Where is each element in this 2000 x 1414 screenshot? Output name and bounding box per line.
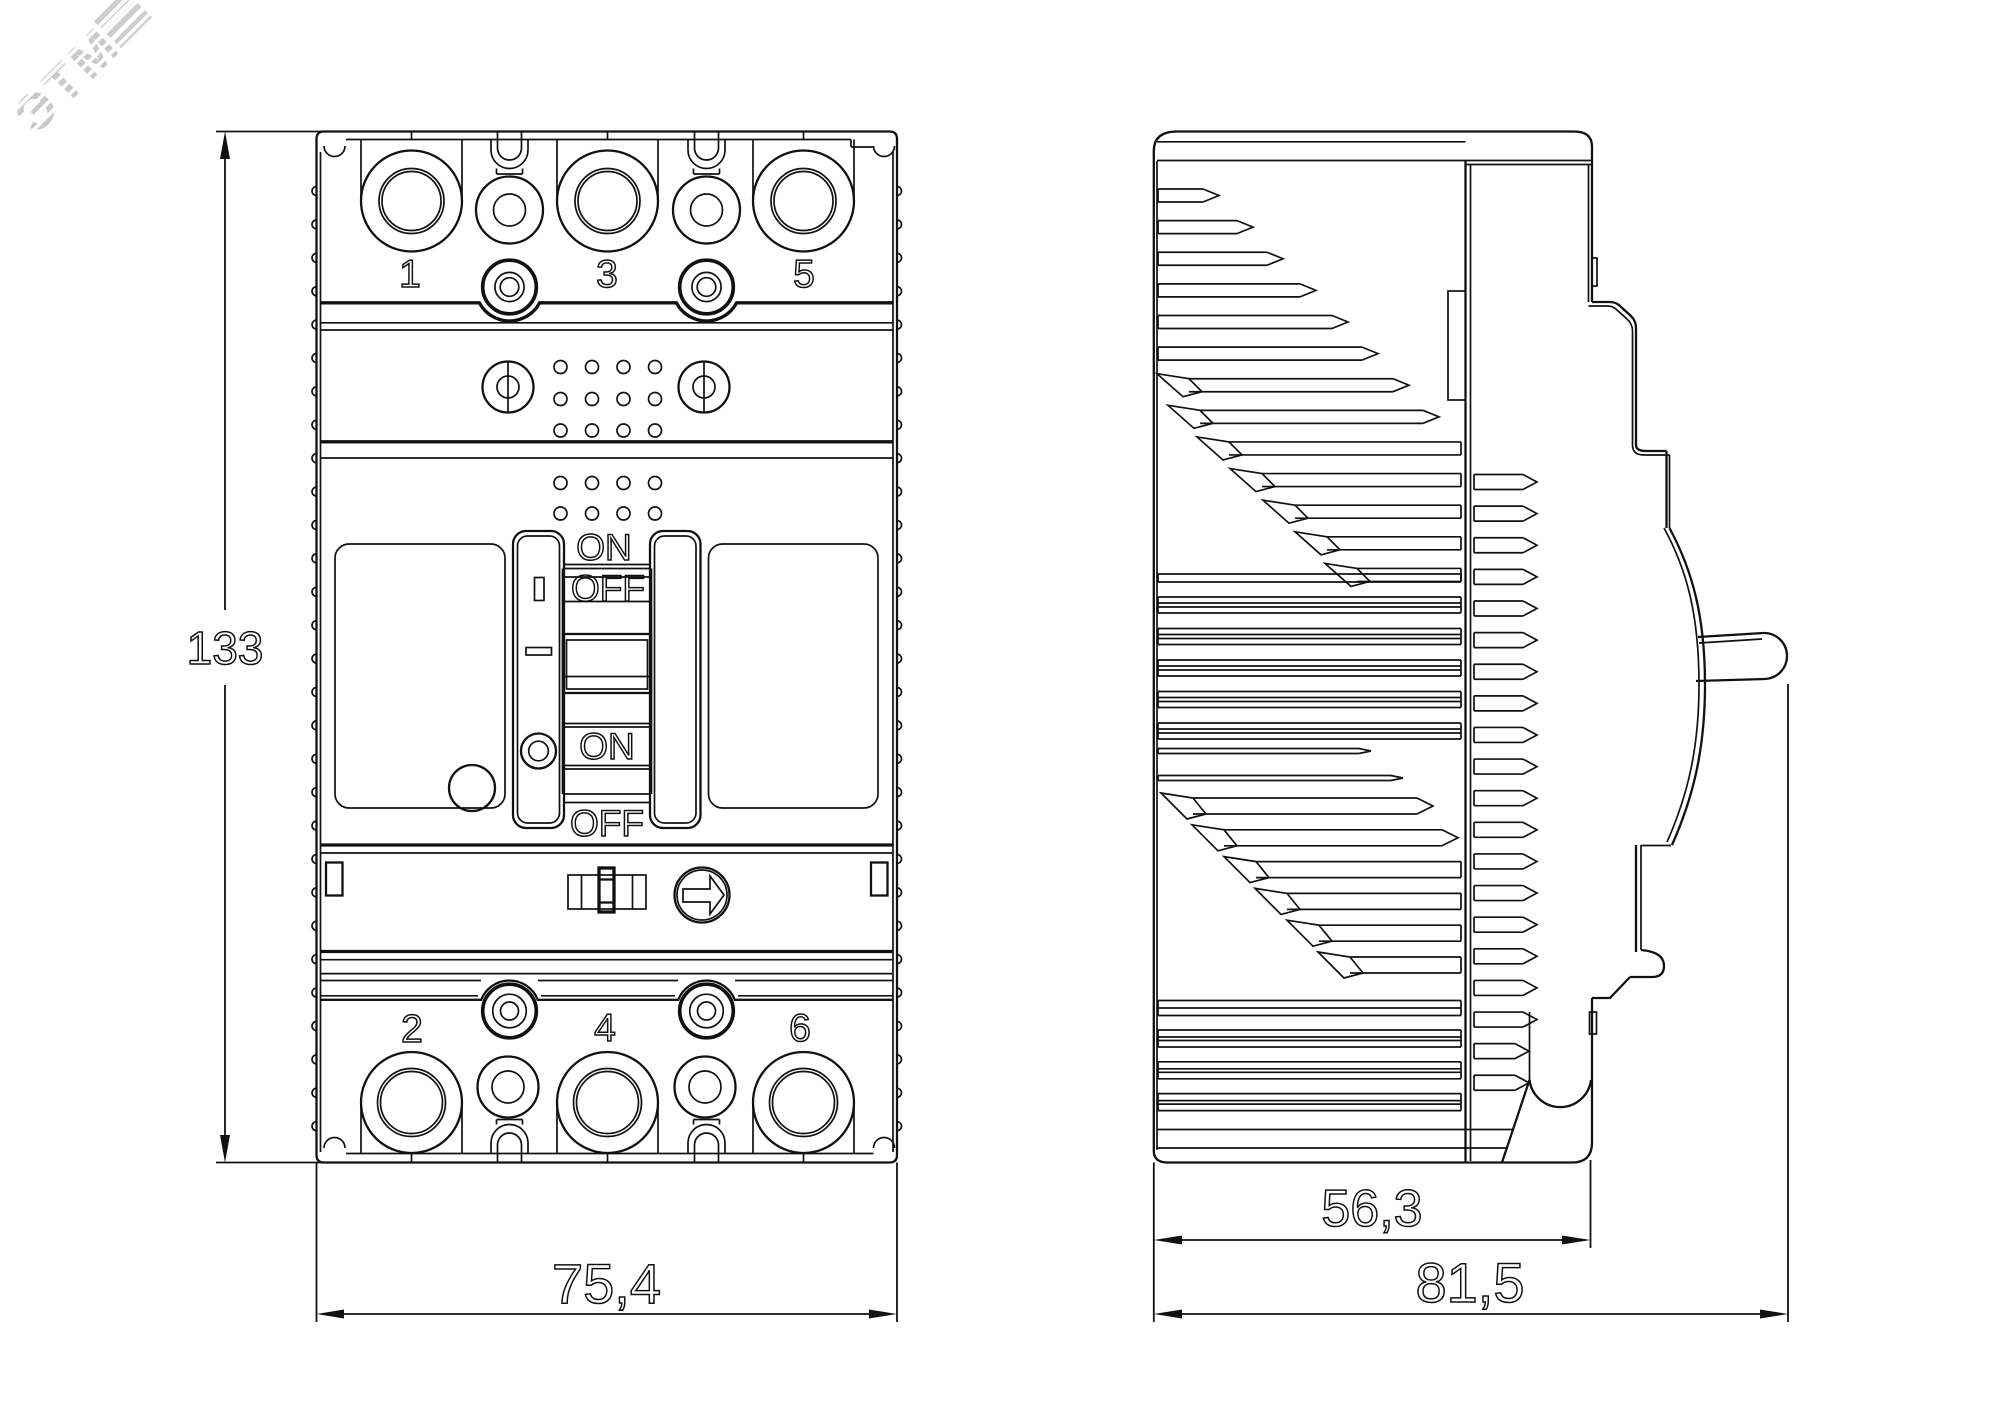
svg-text:56,3: 56,3 [1321,1180,1422,1238]
svg-text:OFF: OFF [571,568,645,609]
svg-text:133: 133 [187,622,264,674]
svg-text:OFF: OFF [570,803,644,844]
svg-text:ON: ON [579,726,635,767]
svg-text:5: 5 [793,253,815,296]
svg-text:75,4: 75,4 [552,1252,661,1315]
svg-text:3: 3 [596,253,618,296]
svg-text:ON: ON [576,527,632,568]
svg-text:2: 2 [401,1008,423,1051]
svg-text:1: 1 [399,253,421,296]
svg-text:81,5: 81,5 [1416,1251,1525,1314]
svg-text:6: 6 [789,1007,811,1050]
svg-text:4: 4 [594,1007,616,1050]
